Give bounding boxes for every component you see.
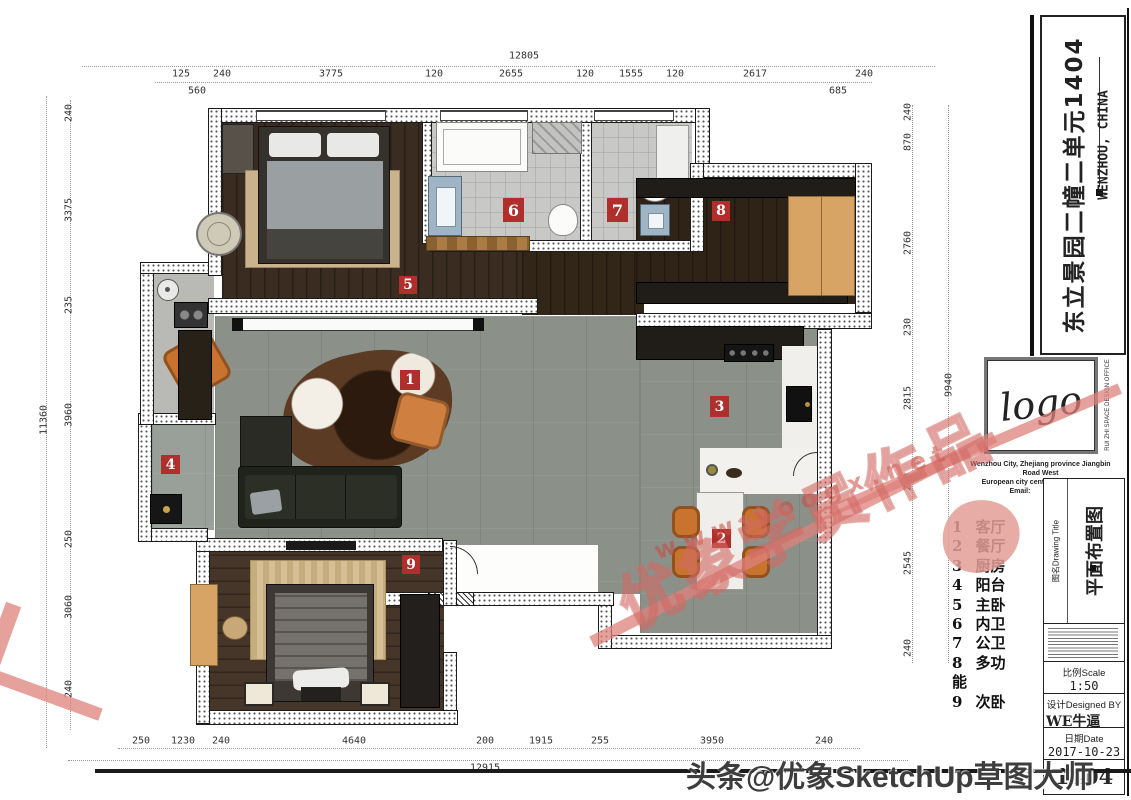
wall-segment	[196, 710, 458, 725]
legend-num: 5	[952, 596, 962, 614]
notes-row	[1044, 624, 1124, 662]
dim-right-seg: 230	[903, 318, 914, 336]
dim-line-top-overall	[82, 66, 935, 67]
window	[594, 110, 674, 121]
pillow	[269, 133, 321, 157]
window	[256, 110, 386, 121]
side-table	[240, 416, 292, 470]
sofa-seam	[295, 475, 296, 519]
dim-top-seg: 3775	[319, 69, 343, 80]
dim-top-seg: 2655	[499, 69, 523, 80]
dim-line-bottom-segments	[118, 748, 860, 749]
dim-left-seg: 240	[64, 104, 75, 122]
wall-segment	[598, 635, 832, 649]
legend-item: 9次卧	[952, 693, 1018, 712]
watermark-headline: 头条@优象SketchUp草图大师	[686, 752, 1094, 796]
dim-bottom-seg: 3950	[700, 736, 724, 747]
decor-dish	[726, 468, 742, 478]
drawing-title-label-cell: 图名Drawing Title	[1044, 479, 1068, 623]
legend-num: 8	[952, 654, 962, 672]
dim-bottom-seg: 240	[815, 736, 833, 747]
sofa	[238, 466, 402, 528]
dim-right-seg: 2545	[903, 551, 914, 575]
project-location: WENZHOU, CHINA	[1097, 90, 1112, 200]
legend-num: 7	[952, 634, 962, 652]
wardrobe	[222, 124, 254, 174]
bed	[266, 584, 374, 702]
dim-right-seg: 240	[903, 639, 914, 657]
stool	[222, 616, 248, 640]
bathtub	[436, 122, 528, 172]
legend-item: 6内卫	[952, 615, 1018, 634]
mattress	[267, 161, 383, 229]
dim-right-seg: 240	[903, 103, 914, 121]
window-band-endcap	[473, 318, 484, 331]
wall-segment	[208, 298, 538, 314]
dim-left-seg: 250	[64, 530, 75, 548]
dim-bottom-seg: 255	[591, 736, 609, 747]
legend-label: 公卫	[975, 634, 1005, 652]
office-name-vertical: RUI ZHI SPACE DESIGN OFFICE	[1105, 359, 1111, 451]
hallway-floor	[522, 245, 644, 315]
dim-left-overall: 11360	[39, 405, 50, 435]
gas-stove	[724, 344, 774, 362]
bath-cabinet	[656, 125, 689, 180]
dim-top-seg: 240	[855, 69, 873, 80]
wardrobe	[400, 594, 440, 708]
dim-top-seg: 120	[666, 69, 684, 80]
legend-label: 内卫	[975, 615, 1005, 633]
dim-top-seg: 240	[213, 69, 231, 80]
cabinet-run	[636, 178, 856, 198]
tall-cabinet	[178, 330, 212, 420]
wall-segment	[855, 163, 872, 313]
dim-left-seg: 3375	[64, 198, 75, 222]
dim-top-seg: 120	[425, 69, 443, 80]
legend-label: 主卧	[975, 596, 1005, 614]
dim-top-sub-left: 560	[188, 86, 206, 97]
legend-num: 9	[952, 693, 962, 711]
dim-bottom-seg: 250	[132, 736, 150, 747]
room-marker-bath-public: 7	[607, 198, 628, 222]
vanity-sink	[640, 204, 670, 236]
dim-bottom-seg: 200	[476, 736, 494, 747]
dim-bottom-seg: 1915	[529, 736, 553, 747]
dim-top-seg: 2617	[743, 69, 767, 80]
desk	[190, 584, 218, 666]
nightstand	[244, 682, 274, 706]
project-title-box: 东立景园二幢二单元1404 WENZHOU, CHINA	[1040, 15, 1126, 355]
master-bed	[258, 126, 390, 264]
drawing-title-label: 图名Drawing Title	[1050, 520, 1061, 582]
drawing-title-row: 图名Drawing Title 平面布置图	[1044, 479, 1124, 624]
legend-item: 5主卧	[952, 596, 1018, 615]
dim-left-seg: 3060	[64, 595, 75, 619]
dim-bottom-seg: 240	[212, 736, 230, 747]
wall-segment	[140, 262, 154, 425]
bed-foot	[301, 687, 341, 701]
sofa-seam	[345, 475, 346, 519]
chair-cushion	[207, 222, 231, 246]
room-marker-kitchen: 3	[710, 396, 729, 417]
nightstand	[360, 682, 390, 706]
dim-top-overall: 12805	[509, 51, 539, 62]
legend-label: 阳台	[975, 576, 1005, 594]
dim-top-seg: 125	[172, 69, 190, 80]
blanket	[267, 229, 383, 259]
desk-seam	[821, 197, 822, 297]
title-table: 图名Drawing Title 平面布置图 比例Scale 1:50 设计Des…	[1043, 478, 1125, 795]
sink-basin	[648, 213, 664, 229]
dim-bottom-seg: 4640	[342, 736, 366, 747]
dim-left-seg: 235	[64, 296, 75, 314]
two-burner-stove	[174, 302, 208, 328]
drawing-title-square	[1090, 565, 1096, 571]
dim-top-seg: 120	[576, 69, 594, 80]
wall-segment	[700, 163, 872, 178]
wall-segment	[690, 163, 704, 252]
dim-bottom-seg: 1230	[171, 736, 195, 747]
room-marker-master-bedroom: 5	[399, 276, 417, 294]
desk-platform	[788, 196, 855, 296]
project-title: 东立景园二幢二单元1404	[1055, 36, 1089, 333]
legend-item: 7公卫	[952, 634, 1018, 653]
mattress	[275, 593, 367, 681]
date-label: 日期Date	[1044, 731, 1124, 745]
legend-label: 次卧	[975, 693, 1005, 711]
scale-value: 1:50	[1044, 679, 1124, 693]
room-marker-bath-inner: 6	[503, 198, 524, 222]
room-marker-balcony: 4	[161, 455, 180, 474]
dim-left-seg: 3960	[64, 403, 75, 427]
sheet-right-border	[1127, 8, 1129, 796]
dim-right-seg: 2815	[903, 386, 914, 410]
dim-right-seg: 870	[903, 133, 914, 151]
scale-label: 比例Scale	[1044, 665, 1124, 679]
window-band-endcap	[232, 318, 243, 331]
toilet	[548, 204, 578, 236]
fridge-handle	[805, 402, 810, 407]
designed-label: 设计Designed BY	[1044, 697, 1124, 711]
bathtub-inner	[443, 129, 521, 165]
window	[440, 110, 528, 121]
wicker-chair	[196, 212, 242, 256]
wall-segment	[443, 652, 457, 714]
sink-drain	[165, 287, 170, 292]
window-sill-band	[232, 318, 484, 331]
dim-right-seg: 2760	[903, 231, 914, 255]
floor-plan-sheet: 12805 125 240 3775 120 2655 120 1555 120…	[0, 0, 1131, 800]
legend-num: 4	[952, 576, 962, 594]
wall-segment	[140, 262, 216, 274]
title-block-divider	[1030, 15, 1034, 356]
room-marker-living: 1	[400, 370, 420, 390]
notes-fine-print	[1048, 628, 1118, 658]
shower-area	[532, 122, 582, 154]
scale-row: 比例Scale 1:50	[1044, 662, 1124, 694]
room-marker-bedroom2: 9	[402, 555, 420, 574]
dim-line-top-segments	[155, 82, 872, 83]
refrigerator	[786, 386, 812, 422]
sofa-pillow	[250, 489, 283, 515]
room-marker-multifunction: 8	[712, 201, 730, 221]
decor-bowl	[706, 464, 718, 476]
legend-num: 6	[952, 615, 962, 633]
laundry-sink	[157, 279, 179, 301]
dim-line-right-segments	[912, 105, 913, 663]
washing-machine	[150, 494, 182, 524]
watermark-stripe	[0, 668, 103, 721]
washer-door	[163, 506, 170, 513]
legend-item: 4阳台	[952, 576, 1018, 595]
legend-item: 8多功能	[952, 654, 1018, 693]
kitchen-counter	[636, 326, 804, 360]
pillow	[327, 133, 379, 157]
designed-row: 设计Designed BY WE牛逼	[1044, 694, 1124, 728]
tv-console	[286, 541, 356, 550]
drawing-title: 平面布置图	[1081, 506, 1107, 596]
dim-top-seg: 1555	[619, 69, 643, 80]
wood-threshold	[426, 236, 530, 251]
vanity-sink	[428, 176, 462, 236]
sink-basin	[436, 187, 456, 227]
dim-top-sub-right: 685	[829, 86, 847, 97]
